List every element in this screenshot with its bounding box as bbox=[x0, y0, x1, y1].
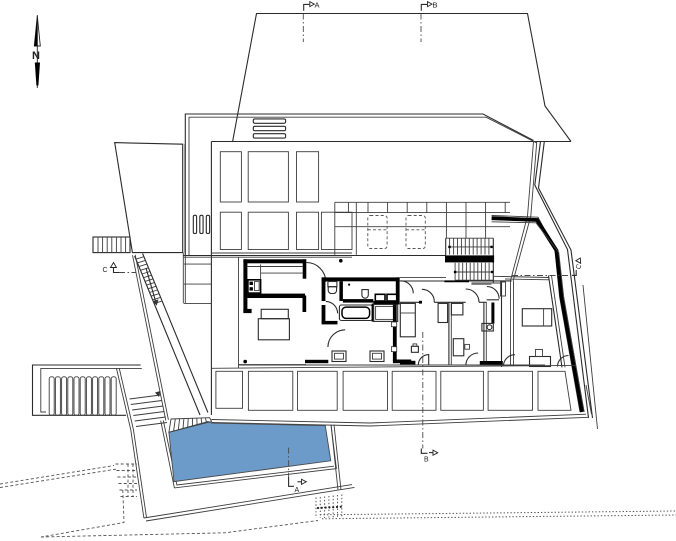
svg-text:N: N bbox=[32, 50, 40, 62]
svg-text:B: B bbox=[424, 457, 429, 464]
svg-text:B: B bbox=[433, 1, 438, 10]
svg-text:C: C bbox=[103, 267, 108, 274]
svg-text:A: A bbox=[315, 1, 320, 10]
